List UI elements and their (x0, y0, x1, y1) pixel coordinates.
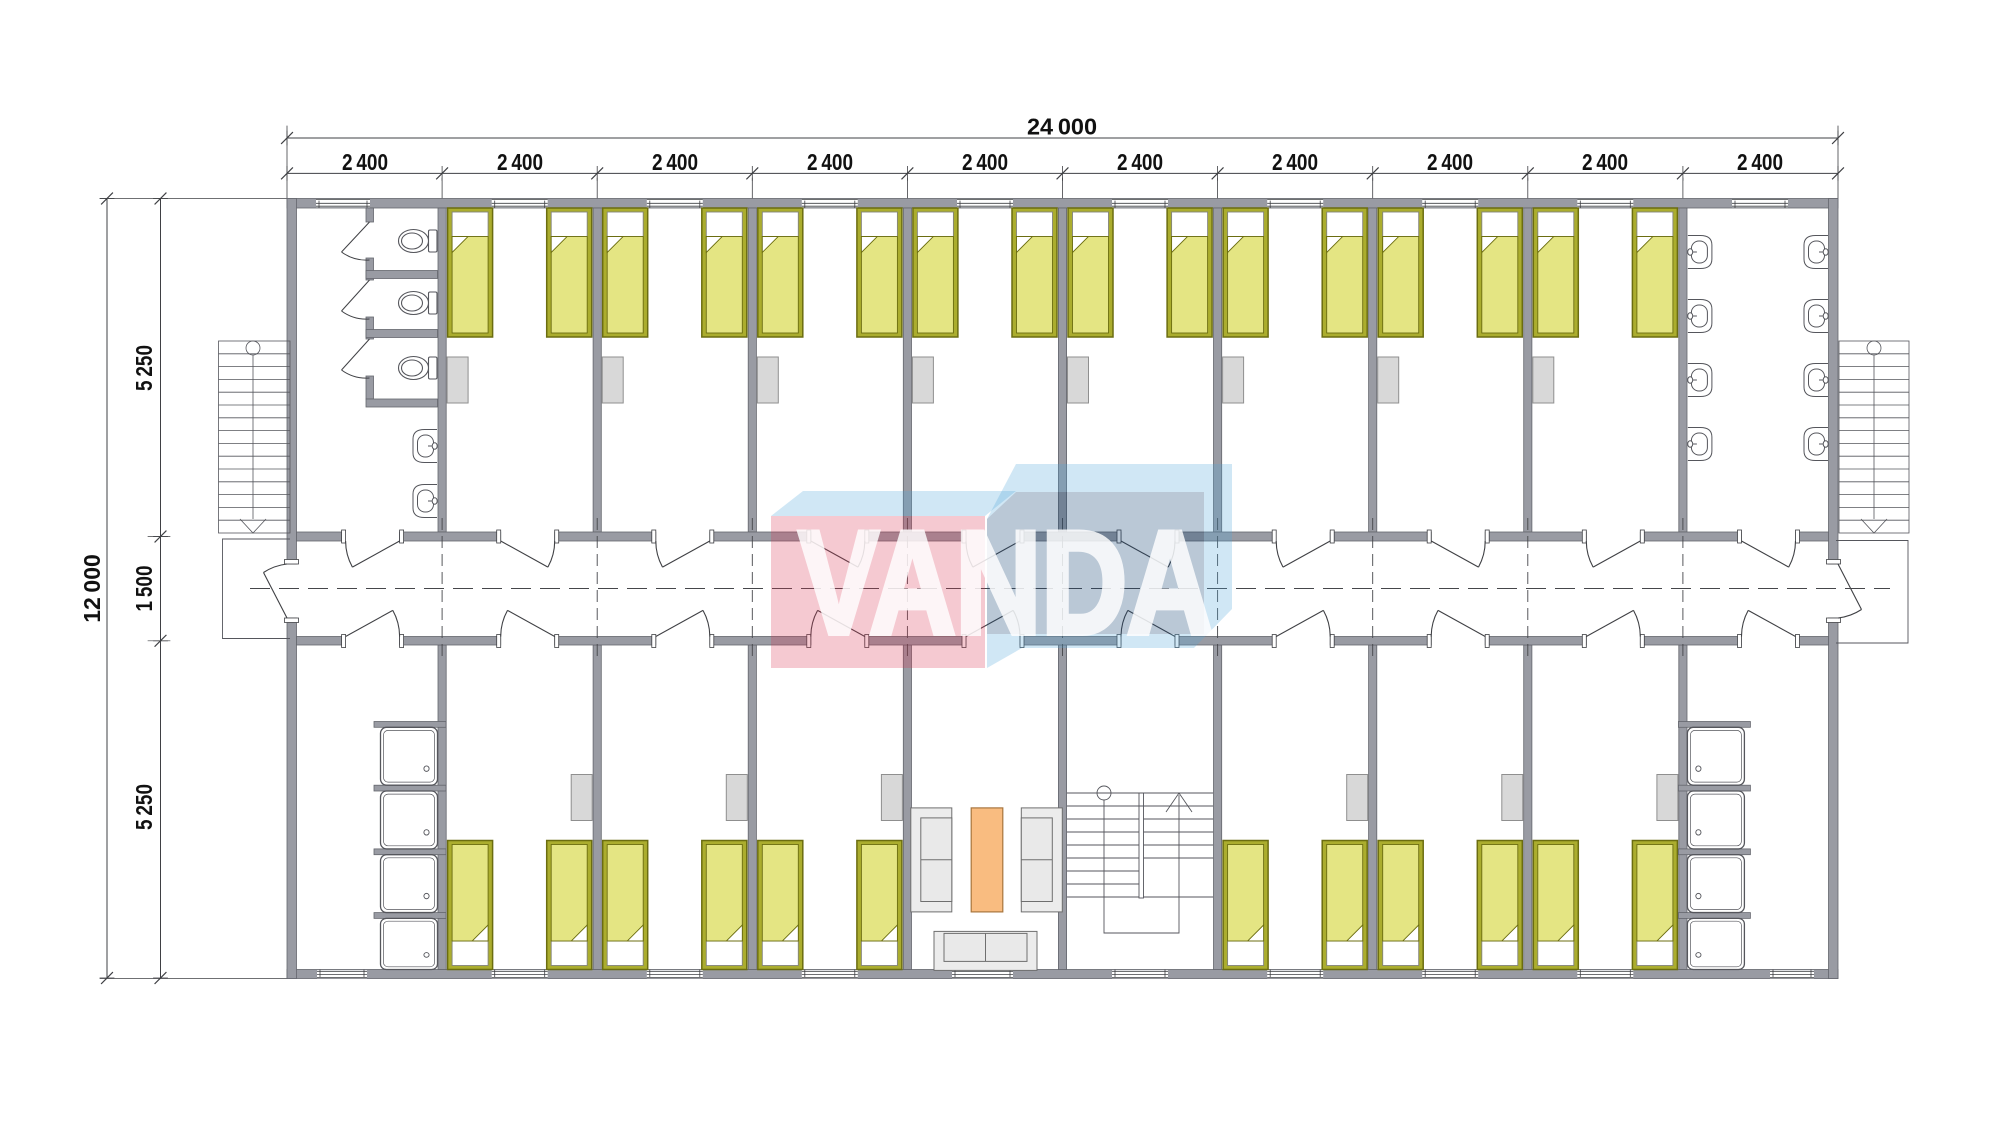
svg-text:2 400: 2 400 (1272, 149, 1318, 175)
svg-text:5 250: 5 250 (131, 345, 157, 391)
svg-text:1 500: 1 500 (131, 566, 157, 612)
svg-text:2 400: 2 400 (807, 149, 853, 175)
svg-text:2 400: 2 400 (1582, 149, 1628, 175)
svg-text:12 000: 12 000 (79, 554, 105, 623)
svg-text:2 400: 2 400 (962, 149, 1008, 175)
svg-text:2 400: 2 400 (497, 149, 543, 175)
svg-text:2 400: 2 400 (342, 149, 388, 175)
svg-text:5 250: 5 250 (131, 784, 157, 830)
svg-text:2 400: 2 400 (1737, 149, 1783, 175)
svg-text:2 400: 2 400 (1427, 149, 1473, 175)
svg-text:2 400: 2 400 (1117, 149, 1163, 175)
svg-text:2 400: 2 400 (652, 149, 698, 175)
svg-text:24 000: 24 000 (1027, 114, 1097, 140)
svg-text:VANDA: VANDA (799, 501, 1213, 664)
